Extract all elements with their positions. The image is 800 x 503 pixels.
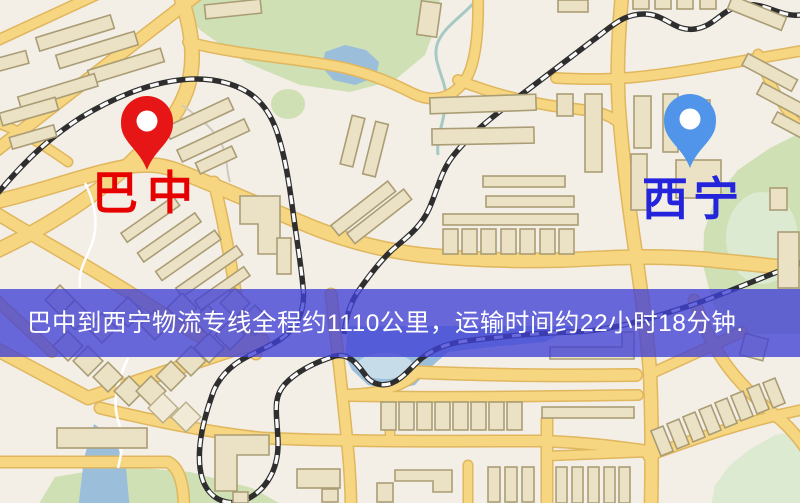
destination-label: 西宁 <box>642 176 744 222</box>
route-info-text: 巴中到西宁物流专线全程约1110公里，运输时间约22小时18分钟. <box>0 304 744 343</box>
map-background <box>0 0 800 503</box>
map-view[interactable]: 巴中 西宁 巴中到西宁物流专线全程约1110公里，运输时间约22小时18分钟. <box>0 0 800 503</box>
route-info-banner: 巴中到西宁物流专线全程约1110公里，运输时间约22小时18分钟. <box>0 289 800 357</box>
origin-label: 巴中 <box>92 170 202 216</box>
